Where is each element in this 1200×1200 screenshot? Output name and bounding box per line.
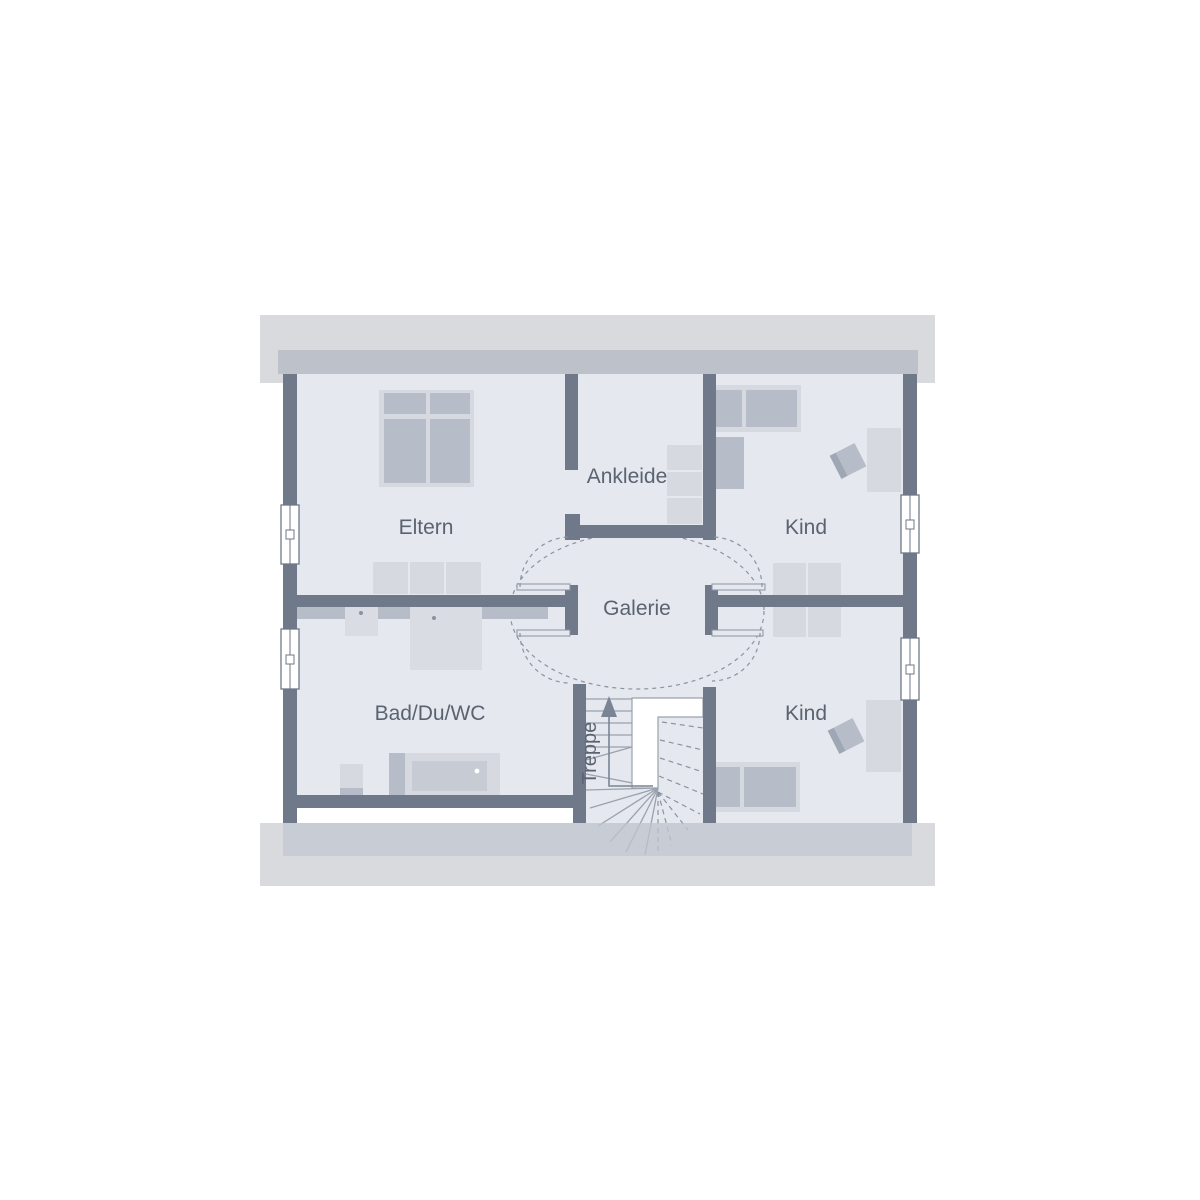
bed-mattress bbox=[746, 390, 797, 427]
ankleide-wall-right bbox=[703, 374, 716, 540]
door-leaf-bad bbox=[517, 630, 570, 636]
exterior-wall-left bbox=[283, 564, 297, 629]
roof-overhang-top bbox=[260, 315, 935, 383]
roof-band-outer-top bbox=[260, 315, 935, 350]
roof-band-corner-bottom-right bbox=[912, 823, 935, 856]
label-ankleide: Ankleide bbox=[587, 465, 668, 488]
door-leaf-kind-bottom bbox=[712, 630, 763, 636]
stair-wall-right bbox=[703, 687, 716, 823]
hall-wall-stub-left bbox=[565, 585, 578, 635]
desk bbox=[867, 428, 901, 492]
bed-mattress-right bbox=[430, 419, 470, 483]
roof-band-inner-bottom bbox=[278, 823, 918, 856]
washbasin-tap-dot bbox=[359, 611, 363, 615]
label-galerie: Galerie bbox=[603, 597, 671, 620]
wardrobe bbox=[667, 445, 702, 524]
wall-eltern-bad bbox=[297, 595, 570, 607]
bed-mattress-left bbox=[384, 419, 426, 483]
label-kind-top: Kind bbox=[785, 516, 827, 539]
ankleide-wall-bottom bbox=[578, 525, 716, 538]
cabinet bbox=[716, 437, 744, 489]
exterior-wall-right bbox=[903, 700, 917, 823]
ankleide-wall-corner bbox=[565, 514, 580, 540]
door-leaf-kind-top bbox=[712, 584, 765, 590]
floor-plan-page: Eltern Ankleide Kind Galerie Bad/Du/WC K… bbox=[0, 0, 1200, 1200]
bottom-white-strip bbox=[297, 808, 573, 823]
window-bad bbox=[281, 629, 299, 689]
desk bbox=[866, 700, 901, 772]
ankleide-wall-left bbox=[565, 374, 578, 470]
label-bad: Bad/Du/WC bbox=[375, 702, 486, 725]
exterior-wall-left bbox=[283, 374, 297, 505]
bed-pillow-right bbox=[430, 393, 470, 414]
roof-band-outer-bottom bbox=[260, 856, 935, 886]
exterior-wall-right bbox=[903, 374, 917, 495]
roof-overhang-bottom bbox=[260, 823, 935, 886]
floor-plan: Eltern Ankleide Kind Galerie Bad/Du/WC K… bbox=[0, 0, 1200, 1200]
shower-drain-dot bbox=[432, 616, 436, 620]
window-kind-bottom bbox=[901, 638, 919, 700]
bathtub bbox=[412, 761, 487, 791]
door-leaf-eltern bbox=[517, 584, 570, 590]
roof-band-inner-top bbox=[278, 350, 918, 374]
bed-pillow bbox=[714, 767, 740, 807]
bathtub-head-shelf bbox=[389, 753, 405, 796]
wall-kind-kind bbox=[716, 595, 903, 607]
window-kind-top bbox=[901, 495, 919, 553]
label-eltern: Eltern bbox=[399, 516, 454, 539]
bed-pillow bbox=[715, 390, 742, 427]
furniture-ankleide bbox=[667, 445, 702, 524]
bed-pillow-left bbox=[384, 393, 426, 414]
hall-wall-stub-right bbox=[705, 585, 718, 635]
bed-mattress bbox=[744, 767, 796, 807]
wc bbox=[340, 764, 363, 788]
roof-band-corner-bottom-left bbox=[260, 823, 283, 856]
dresser bbox=[373, 562, 481, 594]
shower bbox=[410, 607, 482, 670]
wc-tank bbox=[340, 788, 363, 796]
bathtub-drain-dot bbox=[475, 769, 480, 774]
label-treppe: Treppe bbox=[579, 722, 601, 785]
exterior-wall-right bbox=[903, 553, 917, 638]
label-kind-bottom: Kind bbox=[785, 702, 827, 725]
window-eltern bbox=[281, 505, 299, 564]
bad-wall-bottom bbox=[283, 795, 586, 808]
